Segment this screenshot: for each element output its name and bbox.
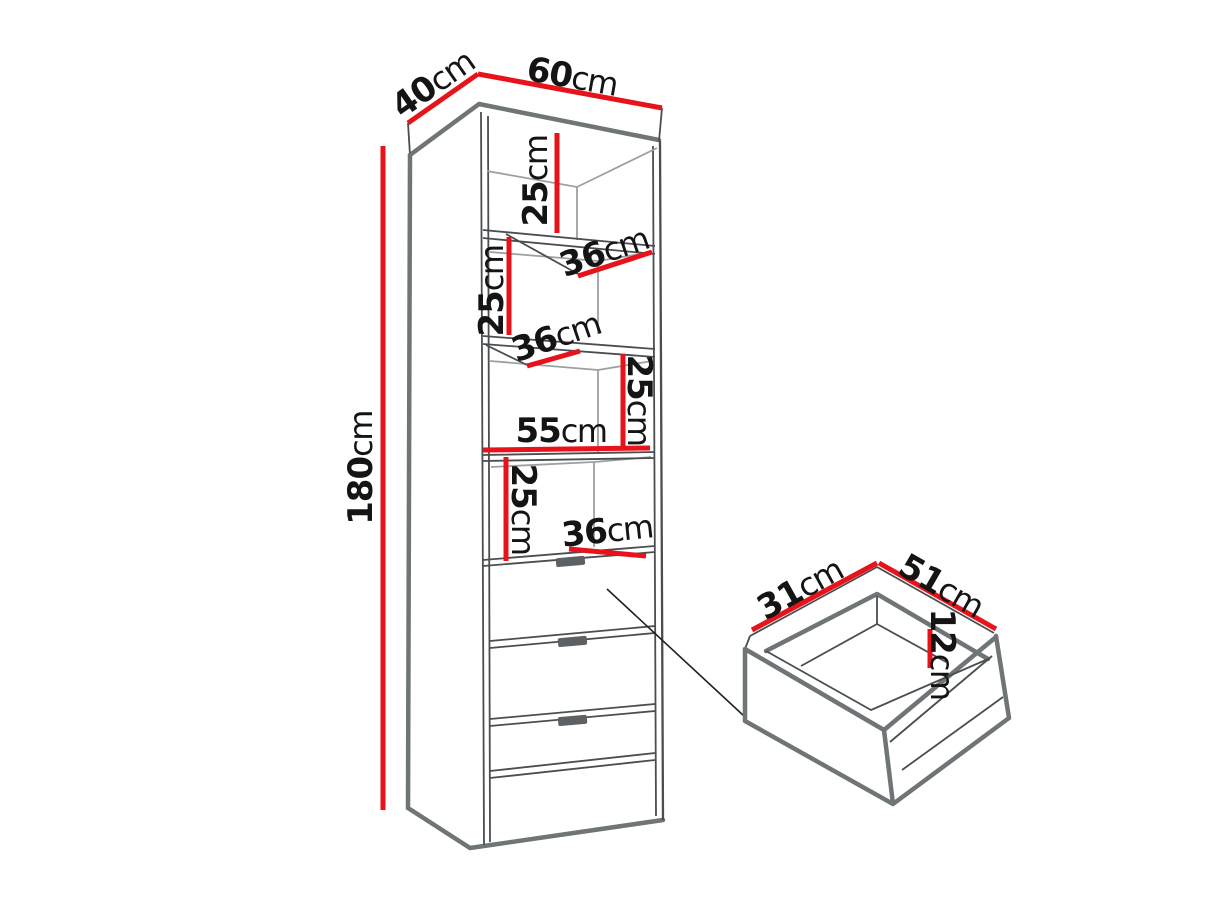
- cabinet-top-panel-right-edge: [659, 108, 662, 141]
- drawer1-handle: [556, 556, 586, 567]
- dimension-label-shelf1-36: 36cm: [554, 218, 653, 285]
- dimension-label-section2-25: 25cm: [472, 245, 512, 336]
- dimension-label-section4-25: 25cm: [503, 463, 543, 554]
- drawer-detail-pointer-line: [607, 589, 744, 716]
- dimension-label-inner-width-55: 55cm: [515, 411, 606, 451]
- dimension-label-section1-25: 25cm: [516, 135, 556, 226]
- dimension-label-section3-25: 25cm: [619, 354, 659, 445]
- cabinet-top-panel-left-edge: [408, 123, 410, 155]
- diagram-canvas: 40cm 60cm 180cm 25cm 36cm 25cm 36cm 25cm…: [0, 0, 1214, 911]
- dimension-label-drawer-height-12: 12cm: [922, 608, 962, 699]
- dimension-label-height-180: 180cm: [341, 411, 381, 525]
- furniture-dimension-diagram: 40cm 60cm 180cm 25cm 36cm 25cm 36cm 25cm…: [0, 0, 1214, 911]
- cabinet-bottom-edge: [408, 808, 663, 848]
- cabinet-front-left-corner-edge: [481, 112, 484, 845]
- cabinet-front-left-inner-edge: [488, 116, 490, 842]
- dimension-label-width-60: 60cm: [524, 49, 621, 104]
- drawer2-handle: [558, 636, 588, 647]
- cabinet-left-side-edge: [408, 155, 410, 808]
- drawer3-handle: [558, 715, 588, 726]
- cabinet-right-outer-edge: [660, 141, 663, 820]
- drawer-front-dividers: [490, 626, 655, 778]
- dimension-label-shelf2-36: 36cm: [506, 303, 605, 370]
- dimension-lines: [383, 74, 996, 810]
- dimension-label-shelf3-36: 36cm: [560, 506, 655, 555]
